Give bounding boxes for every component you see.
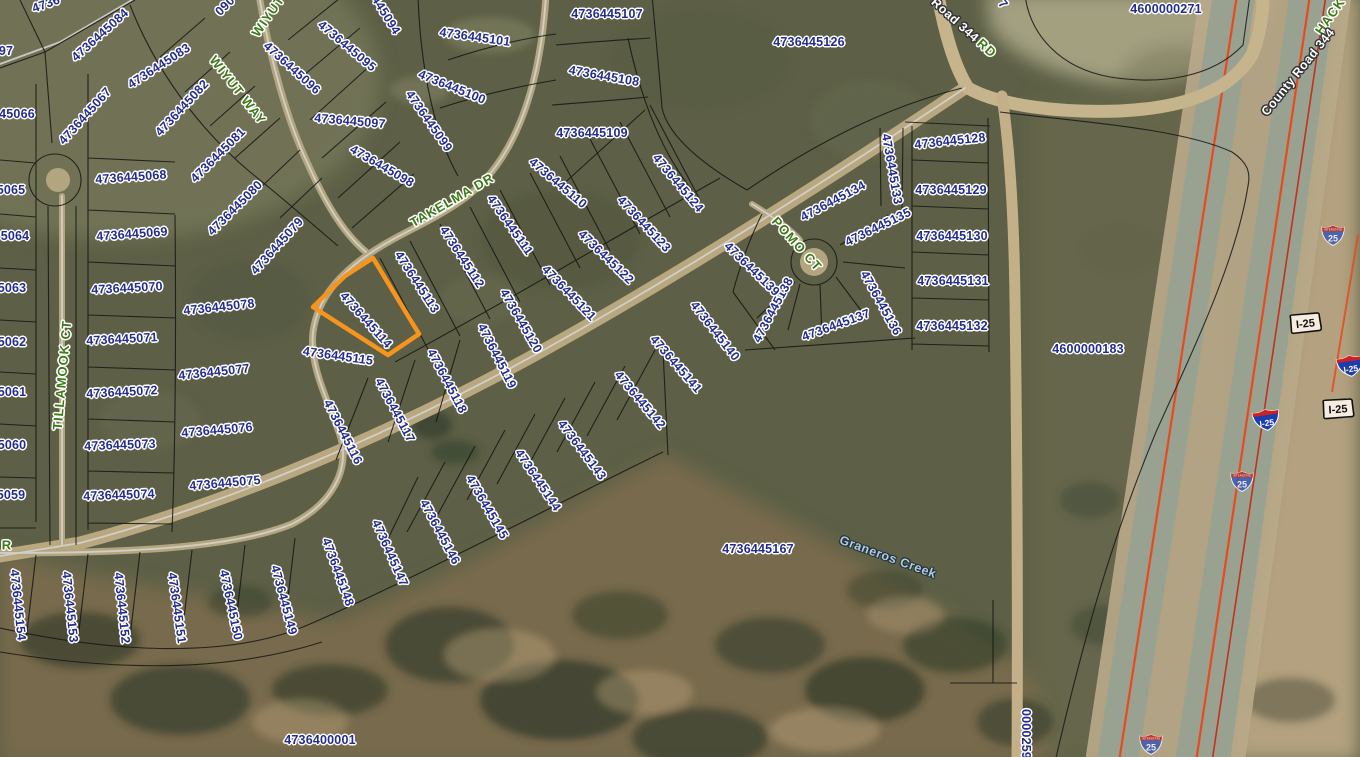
parcel-label[interactable]: 4736445131 [917,274,989,288]
parcel-label[interactable]: 4736445144 [512,446,564,513]
street-label: WIYUT [248,0,287,40]
parcel-label[interactable]: 45066 [0,107,35,121]
parcel-label[interactable]: 5064 [1,229,30,243]
shield-number: I-25 [1259,417,1275,429]
parcel-label[interactable]: 4736445107 [571,7,643,21]
parcel-label[interactable]: 4736445117 [372,375,418,444]
road-label: County Road 344 [1259,26,1338,119]
parcel-label[interactable]: 4736445149 [268,564,300,637]
parcel-label[interactable]: 4736445148 [319,536,357,608]
parcel-label[interactable]: 4736445130 [916,229,988,243]
parcel-label[interactable]: 4736445120 [497,287,545,356]
parcel-label[interactable]: 445094 [369,0,404,37]
parcel-label[interactable]: 5060 [0,438,26,452]
parcel-label[interactable]: 4736445096 [261,39,324,97]
gis-map-canvas[interactable]: 4736445084473644508347364450824736445081… [0,0,1360,757]
parcel-label[interactable]: 4600000271 [1130,2,1202,16]
parcel-label[interactable]: 4736445145 [463,473,511,542]
parcel-label[interactable]: 090 [212,0,237,19]
parcel-label[interactable]: 4736445126 [773,35,845,49]
parcel-label[interactable]: 4736445154 [7,569,28,642]
parcel-label[interactable]: 4736445146 [417,497,463,567]
parcel-label[interactable]: 4736445133 [879,133,905,206]
parcel-label[interactable]: 4600000183 [1052,342,1124,356]
badge-number: I-25 [1328,403,1348,416]
parcel-label[interactable]: 4736445075 [189,473,261,493]
parcel-label[interactable]: 4736445115 [302,344,374,368]
creek-label: Graneros Creek [838,533,939,581]
parcel-label[interactable]: 4736445137 [800,306,872,344]
parcel-label[interactable]: 4736445099 [403,88,455,155]
parcel-label[interactable]: 4736445128 [914,130,987,151]
parcel-label-selected[interactable]: 4736445114 [337,289,395,351]
parcel-label[interactable]: 4736445074 [83,487,155,503]
parcel-label[interactable]: 4736445119 [475,321,520,390]
parcel-label[interactable]: 4736445123 [614,193,673,255]
parcel-label[interactable]: 4736445150 [217,569,246,642]
parcel-label[interactable]: 4736400001 [284,733,356,747]
parcel-label[interactable]: 4736445122 [575,227,636,287]
parcel-label[interactable]: 4736445068 [95,168,167,187]
street-label: POMO CT [769,214,825,274]
parcel-label[interactable]: 4736445101 [439,25,512,49]
parcel-label[interactable]: 4736445113 [392,248,442,315]
parcel-label[interactable]: 4736445083 [125,41,193,92]
map-labels-layer: 4736445084473644508347364450824736445081… [0,0,1360,757]
svg-text:INTERSTATE: INTERSTATE [1142,737,1160,741]
parcel-label[interactable]: 4736445134 [798,178,868,224]
parcel-label[interactable]: 4736445139 [721,239,782,299]
parcel-label[interactable]: 5062 [0,335,26,349]
parcel-label[interactable]: 4736445076 [181,420,253,440]
parcel-label[interactable]: 4736445079 [248,215,306,278]
parcel-label[interactable]: 4736445071 [86,330,158,348]
parcel-label[interactable]: 4736445080 [205,178,265,238]
parcel-label[interactable]: 4736445100 [416,67,488,107]
parcel-label[interactable]: 4736445147 [369,517,411,588]
parcel-label[interactable]: 4736445072 [86,383,158,401]
parcel-label[interactable]: 4736445112 [437,223,487,290]
road-label: Road 344 [928,0,981,45]
parcel-label[interactable]: 4736445135 [843,205,913,249]
parcel-label[interactable]: 4736445109 [556,126,628,140]
parcel-label[interactable]: 4736445073 [84,437,156,453]
parcel-label[interactable]: 4736445098 [348,142,417,190]
parcel-label[interactable]: 4736445167 [722,542,794,556]
parcel-label[interactable]: 4736445110 [526,155,589,211]
parcel-label[interactable]: 4736445084 [69,6,132,64]
parcel-label[interactable]: 4736445153 [59,571,80,644]
parcel-label[interactable]: 4736445132 [916,319,988,333]
shield-number: 25 [1146,743,1156,753]
parcel-label[interactable]: 4736445097 [314,111,386,131]
parcel-label[interactable]: 4736445070 [91,279,163,297]
svg-text:INTERSTATE: INTERSTATE [1324,228,1342,232]
street-label: R [2,538,12,553]
parcel-label[interactable]: 4736445095 [315,18,379,75]
parcel-label[interactable]: 7 [995,0,1010,11]
parcel-label[interactable]: 5063 [0,281,26,295]
parcel-label[interactable]: 0000259 [1019,709,1033,757]
parcel-label[interactable]: 4736445081 [188,125,248,185]
parcel-label[interactable]: 4736445077 [178,361,251,382]
parcel-label[interactable]: 4736445069 [96,225,168,244]
parcel-label[interactable]: 4736445152 [111,572,132,645]
parcel-label[interactable]: 5061 [0,385,26,399]
parcel-label[interactable]: 4736445142 [612,368,669,432]
parcel-label[interactable]: 4736445082 [152,77,211,139]
parcel-label[interactable]: 4736445121 [539,262,599,323]
street-label: RD [974,35,999,60]
street-label: TILLAMOOK CT [50,319,75,430]
parcel-label[interactable]: 4736445067 [56,85,114,148]
parcel-label[interactable]: 4736445143 [555,417,609,483]
street-label: WIYUT WAY [207,53,270,128]
badge-number: I-25 [1295,317,1315,331]
parcel-label[interactable]: 97 [0,44,13,58]
shield-number: 25 [1237,480,1247,490]
parcel-label[interactable]: 4736445111 [484,192,536,257]
svg-text:INTERSTATE: INTERSTATE [1233,474,1251,478]
shield-number: 25 [1328,234,1338,244]
parcel-label[interactable]: 5059 [0,488,25,502]
parcel-label[interactable]: 4736445124 [650,151,707,215]
parcel-label[interactable]: 4736445141 [647,332,704,395]
parcel-label[interactable]: 4736445118 [424,346,470,415]
parcel-label[interactable]: 4736445078 [183,296,256,317]
parcel-label[interactable]: 5065 [0,183,25,197]
parcel-label[interactable]: 4736445129 [915,183,987,197]
parcel-label[interactable]: 4736445151 [165,572,189,645]
parcel-label[interactable]: 4736445136 [858,268,905,337]
parcel-label[interactable]: 4736445108 [568,63,641,89]
parcel-label[interactable]: 4736445140 [687,299,742,364]
shield-number: I-25 [1343,363,1359,375]
parcel-label[interactable]: 4736 [30,0,62,15]
parcel-label[interactable]: 4736445116 [321,397,366,466]
